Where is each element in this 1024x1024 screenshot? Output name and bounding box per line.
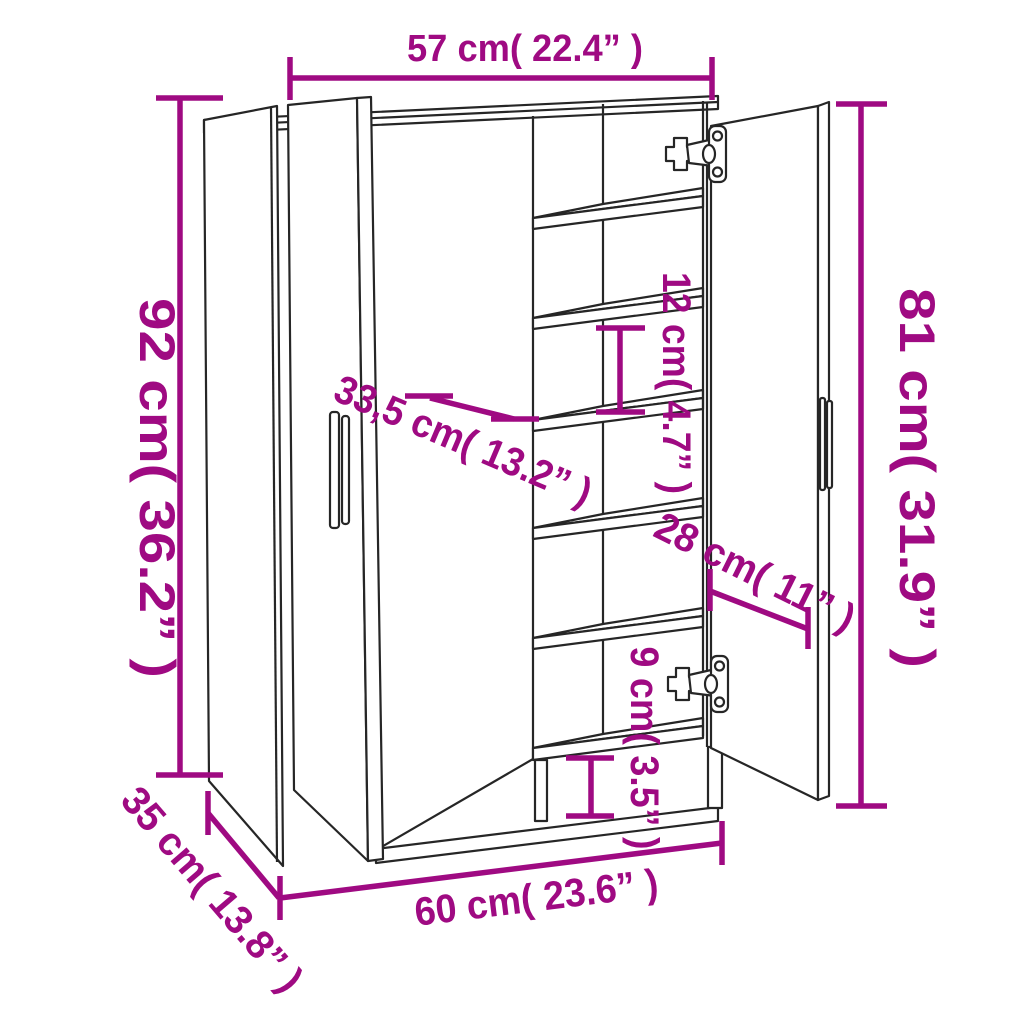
- door-handle: [330, 412, 349, 528]
- foot-right: [708, 747, 722, 808]
- shelf: [533, 608, 703, 649]
- dimension-right-height: 81 cm( 31.9” ): [836, 104, 945, 806]
- foot-left: [535, 760, 547, 821]
- product-dimension-diagram: 57 cm( 22.4” ) 92 cm( 36.2” ) 81 cm( 31.…: [0, 0, 1024, 1024]
- shoe-cabinet-line-drawing: 57 cm( 22.4” ) 92 cm( 36.2” ) 81 cm( 31.…: [0, 0, 1024, 1024]
- hinge-icon: [668, 656, 728, 712]
- left-door-face: [288, 98, 368, 861]
- dimension-label: 57 cm( 22.4” ): [407, 28, 643, 70]
- hinge-icon: [666, 126, 726, 182]
- bottom-shelf: [533, 718, 703, 760]
- dimension-label: 60 cm( 23.6” ): [412, 861, 661, 935]
- dimension-label: 81 cm( 31.9” ): [889, 288, 945, 668]
- dimension-label: 92 cm( 36.2” ): [129, 298, 185, 678]
- dimension-top-width: 57 cm( 22.4” ): [290, 28, 712, 100]
- door-handle: [820, 398, 832, 490]
- dimension-label: 12 cm( 4.7” ): [654, 272, 698, 494]
- right-door: [711, 102, 832, 800]
- dimension-label: 9 cm( 3.5” ): [622, 647, 666, 850]
- shelf: [533, 188, 703, 229]
- left-door: [204, 97, 383, 866]
